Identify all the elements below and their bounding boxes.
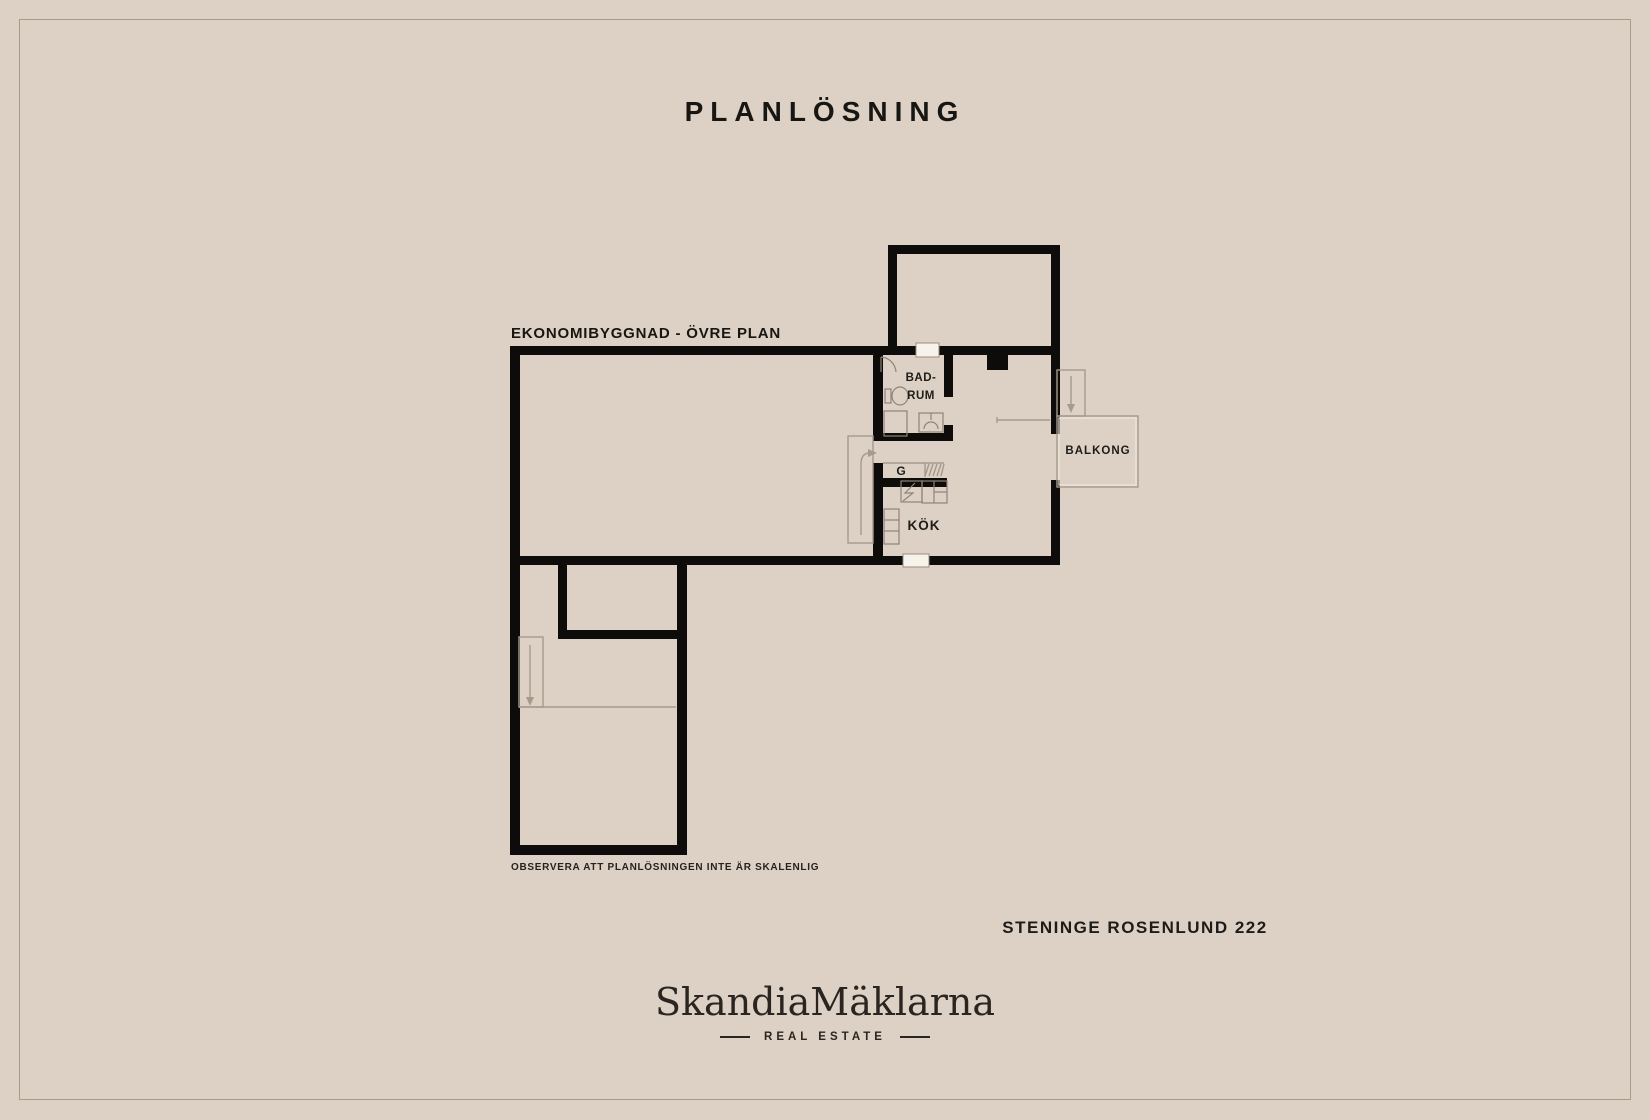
chimney-block: [987, 352, 1008, 370]
fridge-counter-icon: [884, 509, 899, 544]
brand-logo: SkandiaMäklarna: [0, 980, 1650, 1024]
floor-plan-drawing: [0, 0, 1650, 1119]
tagline-right-rule: [900, 1036, 930, 1038]
washing-machine-icon: [884, 411, 907, 436]
floor-plan-page: PLANLÖSNING: [0, 0, 1650, 1119]
brand-tagline-row: REAL ESTATE: [0, 1031, 1650, 1043]
room-label-bathroom: BAD- RUM: [906, 369, 937, 405]
wardrobe-hatch-icon: [883, 463, 944, 477]
tagline-left-rule: [720, 1036, 750, 1038]
wing-stairs: [519, 637, 676, 707]
bathroom-label-line2: RUM: [906, 387, 937, 405]
brand-tagline: REAL ESTATE: [764, 1031, 886, 1043]
toilet-icon: [885, 387, 908, 405]
kitchen-door: [903, 554, 929, 567]
interior-stairs: [848, 436, 877, 543]
bathroom-label-line1: BAD-: [906, 369, 937, 387]
stairs-up-arrow-icon: [861, 453, 870, 535]
sink-icon: [919, 413, 943, 432]
shelf-line: [997, 417, 1050, 423]
property-address: STENINGE ROSENLUND 222: [1002, 918, 1267, 938]
bathroom-door: [916, 343, 939, 357]
room-label-kitchen: KÖK: [908, 518, 941, 533]
door-swing-icon: [881, 357, 896, 372]
plan-name-label: EKONOMIBYGGNAD - ÖVRE PLAN: [511, 325, 781, 342]
room-label-balcony: BALKONG: [1065, 445, 1130, 457]
kitchen-fixtures: [884, 481, 947, 544]
scale-disclaimer-note: OBSERVERA ATT PLANLÖSNINGEN INTE ÄR SKAL…: [511, 862, 819, 873]
room-label-closet: G: [896, 464, 905, 478]
balcony: [1057, 370, 1138, 487]
